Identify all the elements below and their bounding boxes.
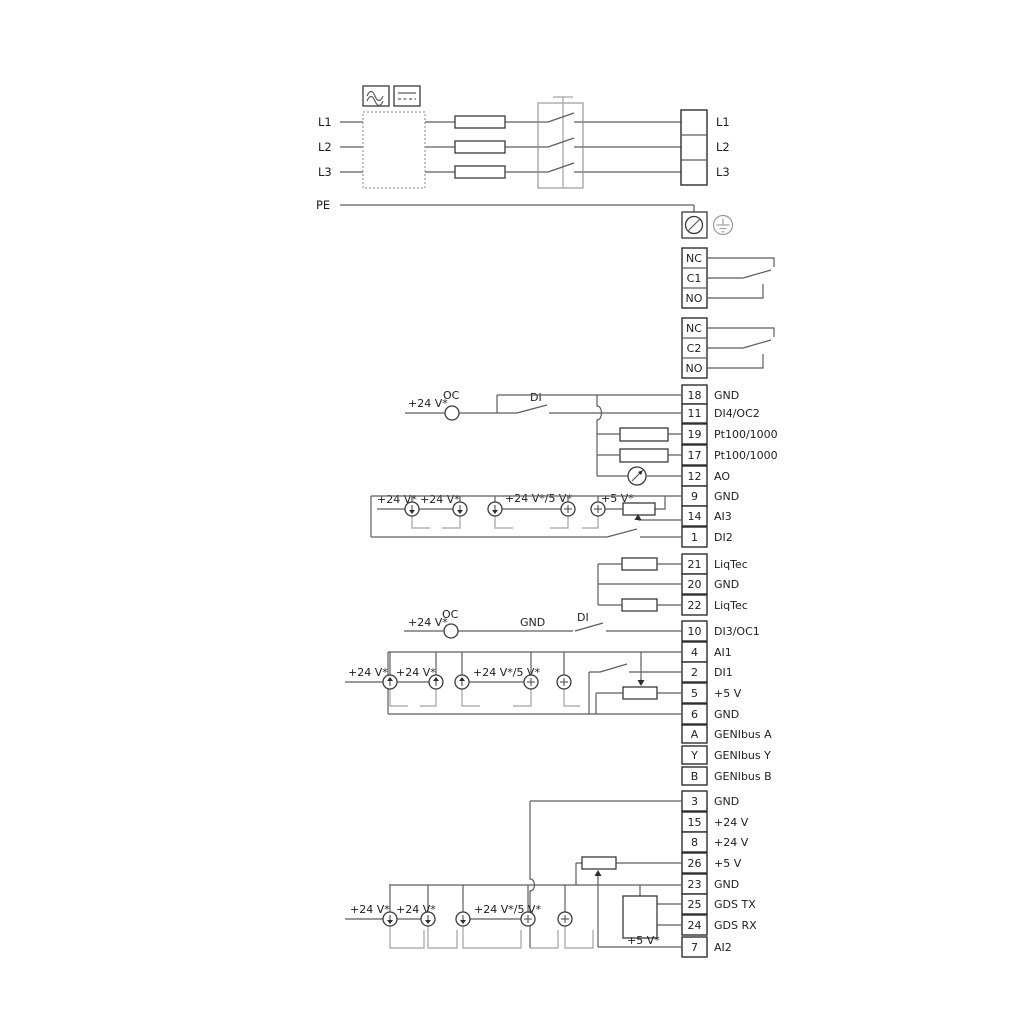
fuse-l3 [455, 166, 505, 178]
svg-text:6: 6 [691, 708, 698, 721]
terminal-row: 19Pt100/1000 [682, 424, 778, 444]
voltage-source-icon [557, 675, 571, 689]
oc-label: OC [443, 389, 460, 402]
relay1-contact [707, 258, 774, 298]
svg-text:GND: GND [714, 878, 739, 891]
liqtec-resistor-2 [622, 599, 657, 611]
open-collector-icon [445, 406, 459, 420]
svg-text:GND: GND [714, 490, 739, 503]
terminal-row: 24GDS RX [682, 915, 757, 935]
svg-text:18: 18 [688, 389, 702, 402]
svg-text:AI3: AI3 [714, 510, 732, 523]
gds-module-box [623, 896, 657, 938]
svg-text:19: 19 [688, 428, 702, 441]
svg-text:NO: NO [686, 362, 703, 375]
main-switch-link [553, 97, 573, 188]
terminal-row: 26+5 V [682, 853, 742, 873]
terminal-row: 9GND [682, 486, 739, 506]
terminal-row: 5+5 V [682, 683, 742, 703]
potentiometer-ai1 [623, 687, 657, 699]
svg-text:25: 25 [688, 898, 702, 911]
v5-label: +5 V* [627, 934, 660, 947]
svg-text:GENIbus Y: GENIbus Y [714, 749, 771, 762]
open-collector-icon [444, 624, 458, 638]
svg-text:GDS RX: GDS RX [714, 919, 757, 932]
terminal-row: 4AI1 [682, 642, 732, 662]
pot-wiper-arrow [638, 680, 645, 686]
svg-text:Pt100/1000: Pt100/1000 [714, 449, 778, 462]
svg-text:DI4/OC2: DI4/OC2 [714, 407, 760, 420]
input-label-pe: PE [316, 198, 330, 212]
input-label-l3: L3 [318, 165, 332, 179]
svg-text:AI2: AI2 [714, 941, 732, 954]
terminal-row: 7AI2 [682, 937, 732, 957]
current-source-icon [453, 502, 467, 516]
svg-text:DI2: DI2 [714, 531, 733, 544]
svg-text:4: 4 [691, 646, 698, 659]
svg-text:C2: C2 [687, 342, 702, 355]
terminal-row: AGENIbus A [682, 725, 772, 743]
dc-symbol-box [394, 86, 420, 106]
input-label-l1: L1 [318, 115, 332, 129]
svg-text:11: 11 [688, 407, 702, 420]
v24v5-label: +24 V*/5 V* [505, 492, 572, 505]
pt100-resistor-2 [620, 449, 668, 462]
terminal-row: 20GND [682, 574, 739, 594]
wiring-diagram-page: L1 L2 L3 PE L1 L2 L3 NC C1 NO [0, 0, 1024, 1024]
svg-text:20: 20 [688, 578, 702, 591]
current-source-icon [456, 912, 470, 926]
svg-text:3: 3 [691, 795, 698, 808]
svg-text:AI1: AI1 [714, 646, 732, 659]
terminal-row: 3GND [682, 791, 739, 811]
relay2-block: NC C2 NO [682, 318, 707, 378]
main-switch-contacts [538, 113, 583, 172]
svg-text:+24 V: +24 V [714, 816, 749, 829]
svg-text:GND: GND [714, 578, 739, 591]
ai3-group-brackets [412, 516, 598, 528]
svg-text:Y: Y [690, 749, 698, 762]
terminal-row: 23GND [682, 874, 739, 894]
svg-text:14: 14 [688, 510, 702, 523]
svg-text:GND: GND [714, 708, 739, 721]
svg-text:Pt100/1000: Pt100/1000 [714, 428, 778, 441]
terminal-row: 8+24 V [682, 832, 749, 852]
svg-text:A: A [691, 728, 699, 741]
voltage-source-icon [561, 502, 575, 516]
di-label: DI [530, 391, 542, 404]
svg-text:10: 10 [688, 625, 702, 638]
svg-text:17: 17 [688, 449, 702, 462]
oc-label: OC [442, 608, 459, 621]
svg-text:C1: C1 [687, 272, 702, 285]
current-source-icon [429, 675, 443, 689]
mains-terminal-block [681, 110, 707, 185]
svg-text:NC: NC [686, 252, 702, 265]
svg-text:22: 22 [688, 599, 702, 612]
svg-text:GND: GND [714, 389, 739, 402]
svg-text:LiqTec: LiqTec [714, 558, 748, 571]
current-source-icon [405, 502, 419, 516]
terminal-row: 18GND [682, 385, 739, 404]
svg-text:24: 24 [688, 919, 702, 932]
svg-text:GDS TX: GDS TX [714, 898, 756, 911]
svg-text:+5 V: +5 V [714, 857, 742, 870]
svg-text:NO: NO [686, 292, 703, 305]
current-source-icon [383, 912, 397, 926]
analog-output-meter-icon [628, 467, 646, 485]
svg-text:5: 5 [691, 687, 698, 700]
terminal-row: 2DI1 [682, 662, 733, 682]
terminal-row: 25GDS TX [682, 894, 756, 914]
terminal-row: BGENIbus B [682, 767, 772, 785]
terminal-row: 22LiqTec [682, 595, 748, 615]
terminal-row: 11DI4/OC2 [682, 404, 760, 423]
svg-text:12: 12 [688, 470, 702, 483]
pt100-resistor-1 [620, 428, 668, 441]
voltage-source-icon [591, 502, 605, 516]
terminal-row: 1DI2 [682, 527, 733, 547]
svg-text:9: 9 [691, 490, 698, 503]
svg-text:B: B [691, 770, 699, 783]
svg-text:DI1: DI1 [714, 666, 733, 679]
mains-wires [340, 122, 694, 212]
svg-text:LiqTec: LiqTec [714, 599, 748, 612]
gnd-label: GND [520, 616, 545, 629]
output-label-l3: L3 [716, 165, 730, 179]
main-switch-box [538, 103, 583, 188]
terminal-row: 6GND [682, 704, 739, 724]
terminal-row: YGENIbus Y [682, 746, 771, 764]
fuse-l2 [455, 141, 505, 153]
svg-text:GENIbus B: GENIbus B [714, 770, 772, 783]
svg-text:8: 8 [691, 836, 698, 849]
di-label: DI [577, 611, 589, 624]
current-source-icon [455, 675, 469, 689]
output-label-l2: L2 [716, 140, 730, 154]
terminal-row: 15+24 V [682, 812, 749, 832]
potentiometer-ai2 [582, 857, 616, 869]
ai1-group-brackets [390, 689, 580, 706]
svg-text:21: 21 [688, 558, 702, 571]
pe-screw-icon [682, 212, 707, 238]
svg-text:26: 26 [688, 857, 702, 870]
svg-text:GENIbus A: GENIbus A [714, 728, 772, 741]
svg-text:7: 7 [691, 941, 698, 954]
voltage-source-icon [524, 675, 538, 689]
v24-label: +24 V* [348, 666, 388, 679]
terminal-row: 10DI3/OC1 [682, 621, 760, 641]
wiring-diagram: L1 L2 L3 PE L1 L2 L3 NC C1 NO [0, 0, 1024, 1024]
liqtec-resistor-1 [622, 558, 657, 570]
svg-text:2: 2 [691, 666, 698, 679]
fuse-l1 [455, 116, 505, 128]
current-source-icon [488, 502, 502, 516]
relay1-block: NC C1 NO [682, 248, 707, 308]
pot-wiper-arrow [595, 870, 602, 876]
current-source-icon [383, 675, 397, 689]
output-label-l1: L1 [716, 115, 730, 129]
svg-text:1: 1 [691, 531, 698, 544]
svg-text:15: 15 [688, 816, 702, 829]
terminal-row: 14AI3 [682, 506, 732, 526]
input-label-l2: L2 [318, 140, 332, 154]
potentiometer-ai3 [623, 503, 655, 515]
terminal-row: 12AO [682, 466, 730, 486]
svg-text:GND: GND [714, 795, 739, 808]
voltage-source-icon [521, 912, 535, 926]
current-source-icon [421, 912, 435, 926]
earth-icon [714, 216, 733, 235]
terminal-row: 21LiqTec [682, 554, 748, 574]
svg-text:+5 V: +5 V [714, 687, 742, 700]
terminal-row: 17Pt100/1000 [682, 445, 778, 465]
svg-text:+24 V: +24 V [714, 836, 749, 849]
svg-text:23: 23 [688, 878, 702, 891]
relay2-contact [707, 328, 774, 368]
filter-box [363, 112, 425, 188]
svg-text:AO: AO [714, 470, 730, 483]
svg-text:DI3/OC1: DI3/OC1 [714, 625, 760, 638]
voltage-source-icon [558, 912, 572, 926]
bottom-group-brackets [390, 926, 593, 948]
svg-text:NC: NC [686, 322, 702, 335]
